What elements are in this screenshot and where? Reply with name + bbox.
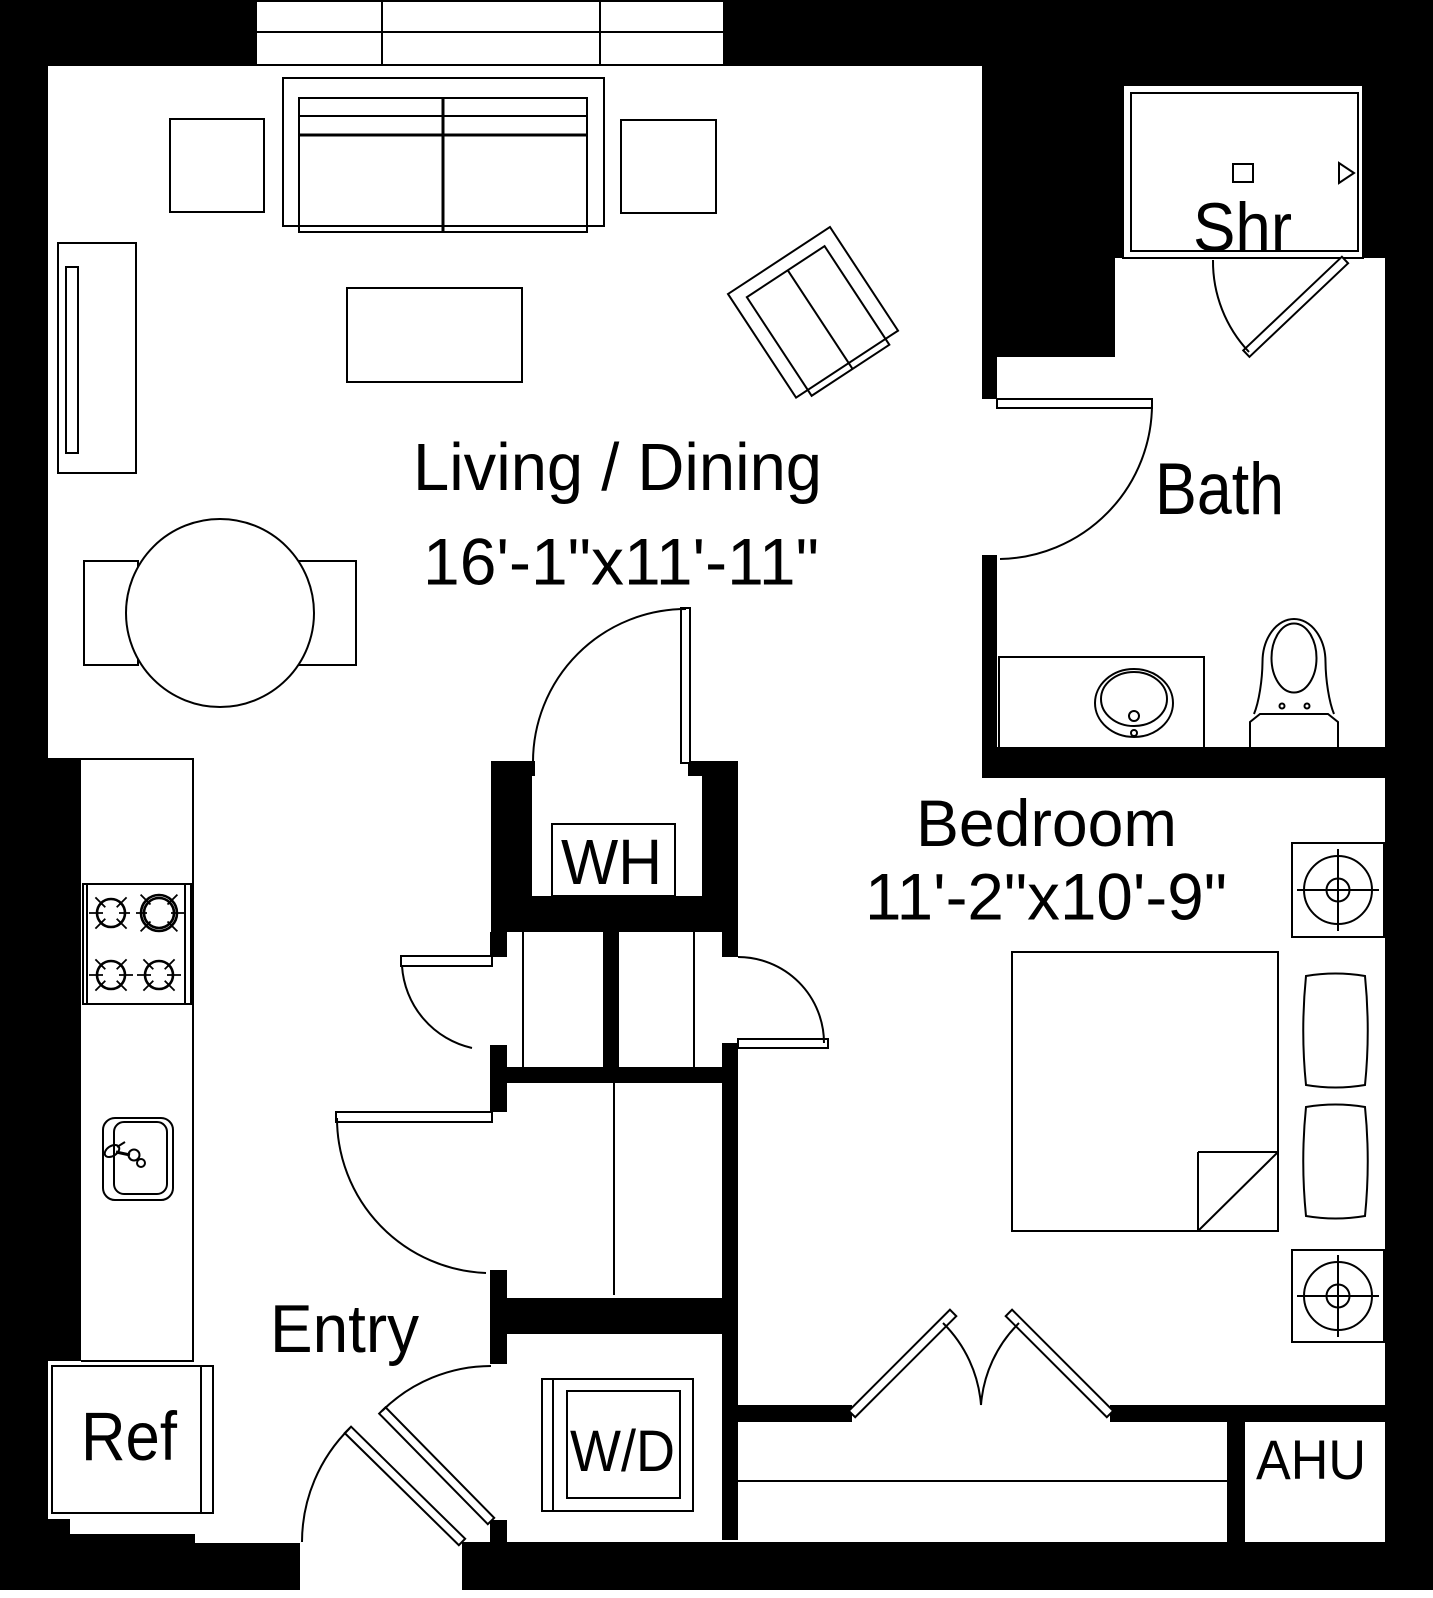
svg-text:AHU: AHU <box>1256 1428 1366 1491</box>
svg-text:Shr: Shr <box>1193 189 1292 266</box>
svg-text:WH: WH <box>561 826 662 898</box>
svg-text:Bedroom: Bedroom <box>916 786 1177 860</box>
svg-text:11'-2"x10'-9": 11'-2"x10'-9" <box>865 860 1227 934</box>
svg-text:W/D: W/D <box>570 1419 675 1484</box>
svg-text:16'-1"x11'-11": 16'-1"x11'-11" <box>423 525 819 599</box>
svg-text:Entry: Entry <box>270 1291 419 1367</box>
svg-text:Living / Dining: Living / Dining <box>413 430 822 505</box>
svg-text:Bath: Bath <box>1155 449 1284 530</box>
svg-text:Ref: Ref <box>81 1398 178 1475</box>
